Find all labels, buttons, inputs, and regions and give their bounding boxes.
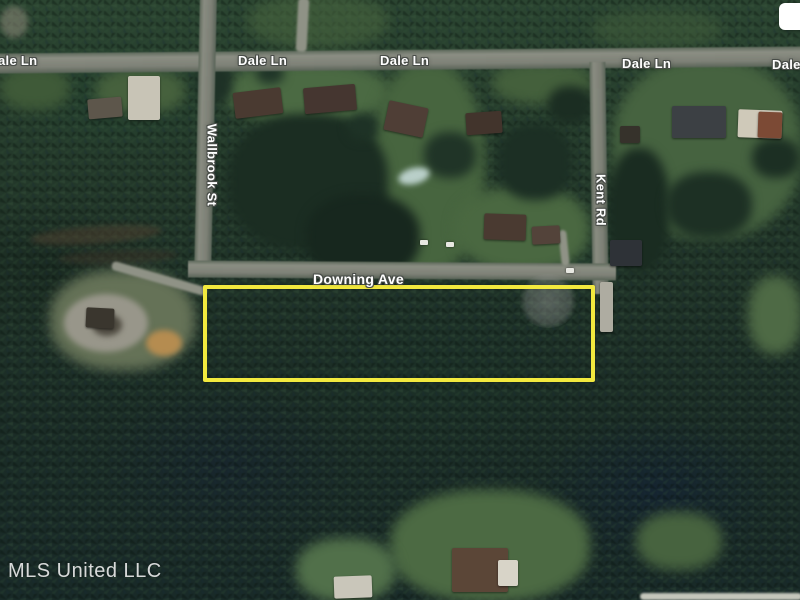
- house: [672, 106, 726, 138]
- house-roof: [758, 112, 783, 139]
- satellite-map-viewport: ale Ln Dale Ln Dale Ln Dale Ln Dale Wall…: [0, 0, 800, 600]
- house: [465, 111, 502, 135]
- shed: [620, 126, 640, 143]
- house: [334, 575, 373, 598]
- car: [566, 268, 574, 273]
- street-label-dale-ln-partial-right: Dale: [772, 58, 800, 71]
- tree-clump: [548, 86, 592, 124]
- mobile-home: [600, 282, 613, 332]
- grass-area: [636, 512, 722, 570]
- street-label-kent-rd: Kent Rd: [595, 174, 608, 226]
- house: [128, 76, 160, 120]
- street-label-dale-ln-1: Dale Ln: [238, 54, 287, 67]
- house: [484, 213, 527, 240]
- house: [303, 84, 357, 114]
- map-control-button[interactable]: [779, 3, 800, 30]
- tree-clump: [752, 138, 800, 178]
- sand-patch: [146, 330, 182, 356]
- grass-area: [248, 0, 388, 48]
- house: [532, 225, 561, 244]
- grass-area: [592, 10, 722, 48]
- parcel-outline: [203, 285, 595, 382]
- street-label-dale-ln-partial-left: ale Ln: [0, 54, 37, 67]
- house: [87, 97, 123, 120]
- dirt-patch: [0, 6, 28, 38]
- tree-clump: [666, 172, 752, 238]
- mls-watermark: MLS United LLC: [8, 560, 162, 583]
- car: [420, 240, 428, 245]
- street-label-dale-ln-3: Dale Ln: [622, 57, 671, 70]
- tree-clump: [498, 124, 572, 200]
- grass-area: [748, 276, 800, 354]
- shed: [85, 307, 114, 328]
- car: [446, 242, 454, 247]
- street-label-wallbrook-st: Wallbrook St: [206, 124, 219, 207]
- street-label-downing-ave: Downing Ave: [313, 272, 404, 286]
- tree-clump: [424, 132, 476, 178]
- house-wing: [498, 560, 518, 586]
- tree-clump: [348, 114, 378, 140]
- street-label-dale-ln-2: Dale Ln: [380, 54, 429, 67]
- road-bottom-edge: [640, 593, 800, 600]
- house: [610, 240, 642, 266]
